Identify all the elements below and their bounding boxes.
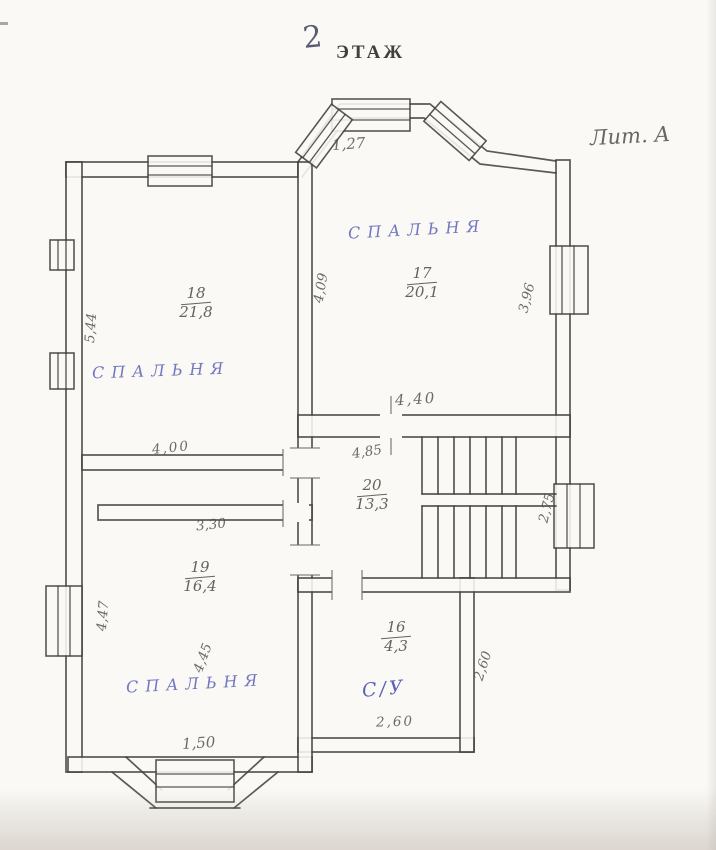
window-top-left-bedroom bbox=[148, 156, 212, 186]
room-number: 16 bbox=[372, 620, 420, 635]
wall-bottom-bathroom bbox=[298, 738, 474, 752]
floor-number: 2 bbox=[301, 19, 324, 56]
window-bedroom-bottom-left bbox=[46, 586, 82, 656]
door-opening-bedroom-bottom bbox=[283, 503, 309, 522]
dim-left-wall-upper: 5,44 bbox=[82, 312, 100, 343]
window-bay-right bbox=[424, 102, 486, 161]
window-left-upper bbox=[50, 240, 74, 270]
dim-bay-window-top: 1,27 bbox=[331, 134, 366, 154]
windows bbox=[46, 99, 594, 808]
liter-label: Лит. А bbox=[589, 122, 670, 150]
room-fraction-20: 20 13,3 bbox=[348, 478, 396, 512]
dim-bathroom-width: 2,60 bbox=[376, 713, 415, 730]
window-left-middle bbox=[50, 353, 74, 389]
room-area: 4,3 bbox=[372, 639, 420, 654]
window-stair-landing bbox=[554, 484, 594, 548]
room-fraction-19: 19 16,4 bbox=[176, 560, 224, 594]
room-number: 18 bbox=[172, 286, 220, 301]
stair-flight-upper bbox=[422, 437, 556, 494]
wall-under-bedroom-right bbox=[298, 415, 570, 437]
wall-bedroom-left-bottom bbox=[82, 455, 312, 470]
wall-right-bathroom bbox=[460, 578, 474, 752]
room-area: 20,1 bbox=[398, 285, 446, 300]
dim-bedroom-bottom-width-top: 3,30 bbox=[195, 515, 227, 534]
dim-bedroom-bottom-left-wall: 4,47 bbox=[94, 600, 113, 631]
staircase bbox=[422, 437, 556, 578]
door-opening-stair-hall bbox=[296, 545, 314, 575]
room-number: 19 bbox=[176, 560, 224, 575]
window-bedroom-right bbox=[550, 246, 588, 314]
door-opening-bedroom-right bbox=[380, 413, 402, 439]
dim-bay-window-bottom: 1,50 bbox=[181, 733, 216, 753]
scan-artifact-mark bbox=[0, 22, 8, 25]
room-label-bathroom: С/У bbox=[361, 676, 406, 702]
scan-artifact-bottom bbox=[0, 788, 716, 850]
room-fraction-16: 16 4,3 bbox=[372, 620, 420, 654]
room-area: 16,4 bbox=[176, 579, 224, 594]
door-opening-bedroom-left bbox=[283, 453, 309, 472]
room-fraction-17: 17 20,1 bbox=[398, 266, 446, 300]
door-opening-bathroom bbox=[332, 576, 362, 594]
room-fraction-18: 18 21,8 bbox=[172, 286, 220, 320]
dim-bedroom-right-width: 4,40 bbox=[394, 389, 437, 410]
room-area: 13,3 bbox=[348, 497, 396, 512]
room-number: 17 bbox=[398, 266, 446, 281]
floor-plan-page: 2 ЭТАЖ Лит. А СПАЛЬНЯ СПАЛЬНЯ СПАЛЬНЯ С/… bbox=[0, 0, 716, 850]
room-area: 21,8 bbox=[172, 305, 220, 320]
room-number: 20 bbox=[348, 478, 396, 493]
floor-word: ЭТАЖ bbox=[336, 42, 405, 64]
scan-artifact-right-edge bbox=[706, 0, 716, 850]
